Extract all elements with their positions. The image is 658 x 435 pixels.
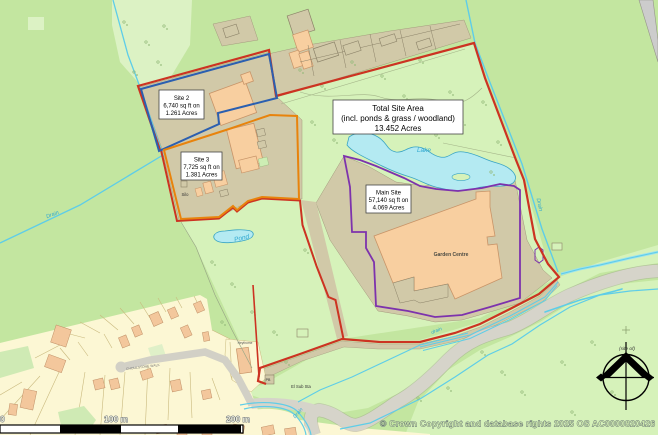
svg-text:Silo: Silo (182, 192, 190, 197)
svg-text:7,725 sq ft on: 7,725 sq ft on (183, 165, 219, 171)
svg-text:1.381 Acres: 1.381 Acres (186, 173, 218, 179)
svg-text:1.261 Acres: 1.261 Acres (166, 111, 198, 117)
svg-text:© Crown Copyright and database: © Crown Copyright and database rights 20… (380, 419, 655, 429)
svg-text:(site of): (site of) (619, 346, 635, 352)
svg-text:Site 3: Site 3 (194, 158, 210, 164)
svg-text:200 m: 200 m (226, 414, 251, 424)
svg-text:6,740 sq ft on: 6,740 sq ft on (163, 104, 199, 110)
svg-text:El Sub Sta: El Sub Sta (291, 384, 311, 389)
svg-text:Lake: Lake (417, 147, 431, 154)
svg-text:Total Site Area: Total Site Area (372, 104, 424, 113)
svg-text:PB: PB (266, 378, 271, 382)
svg-text:100 m: 100 m (104, 414, 129, 424)
svg-text:57,140 sq ft on: 57,140 sq ft on (369, 198, 409, 204)
svg-text:Main Site: Main Site (376, 191, 402, 197)
svg-text:13.452 Acres: 13.452 Acres (375, 124, 422, 133)
svg-text:0: 0 (0, 414, 5, 424)
svg-text:(incl. ponds & grass / woodlan: (incl. ponds & grass / woodland) (341, 114, 455, 123)
svg-text:4.069 Acres: 4.069 Acres (373, 206, 405, 212)
svg-text:Heythorne: Heythorne (238, 341, 253, 345)
svg-text:Site 2: Site 2 (174, 96, 190, 102)
svg-text:Garden Centre: Garden Centre (434, 252, 469, 258)
